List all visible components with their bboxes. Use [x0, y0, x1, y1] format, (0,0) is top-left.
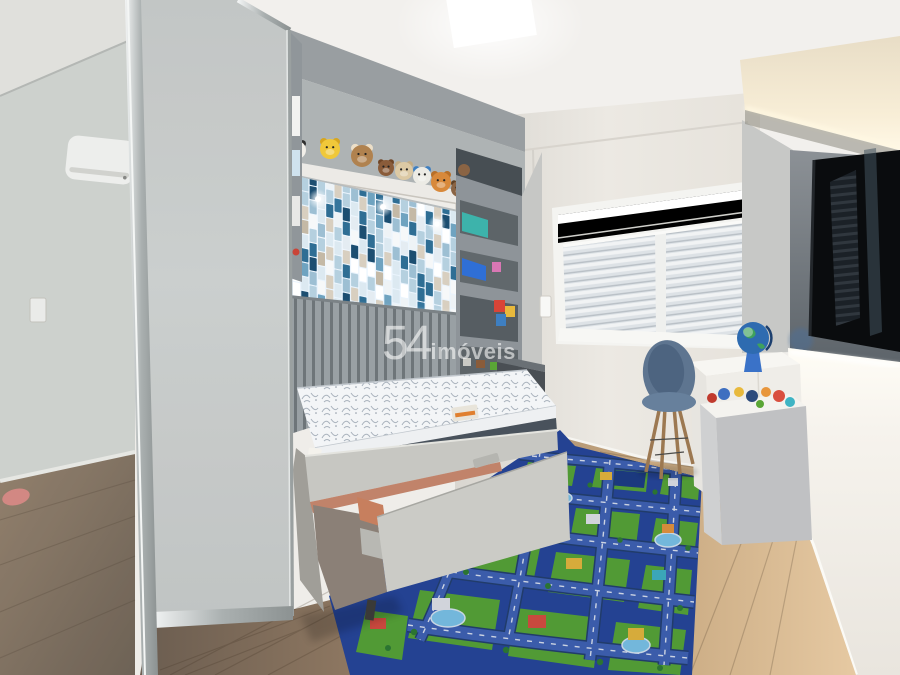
bedroom-photo: 54 imóveis [0, 0, 900, 675]
toy [496, 314, 506, 326]
plush-on-shelf [458, 164, 470, 176]
plush-puppy [351, 144, 373, 167]
toy [490, 362, 498, 370]
light-switch [540, 296, 551, 317]
spotlight [380, 204, 386, 210]
plush-teddy-small [378, 159, 394, 176]
window-mullion [655, 230, 666, 336]
toy [505, 306, 515, 317]
toy [494, 300, 505, 312]
photo-canvas [0, 0, 900, 675]
toy [463, 358, 471, 366]
plush-pikachu [320, 138, 340, 159]
toy [476, 360, 485, 368]
spotlight [315, 196, 321, 202]
shelving-unit [456, 148, 522, 392]
pedestal-front [716, 406, 812, 545]
toy [492, 262, 501, 272]
plush-bear-orange [431, 171, 451, 192]
tv [810, 148, 900, 352]
globe-stand [744, 352, 762, 372]
chair-seat [642, 392, 696, 412]
plush-duck [413, 166, 431, 185]
spotlight [434, 221, 439, 226]
wardrobe [0, 0, 302, 675]
plush-teddy-cream [395, 161, 413, 180]
